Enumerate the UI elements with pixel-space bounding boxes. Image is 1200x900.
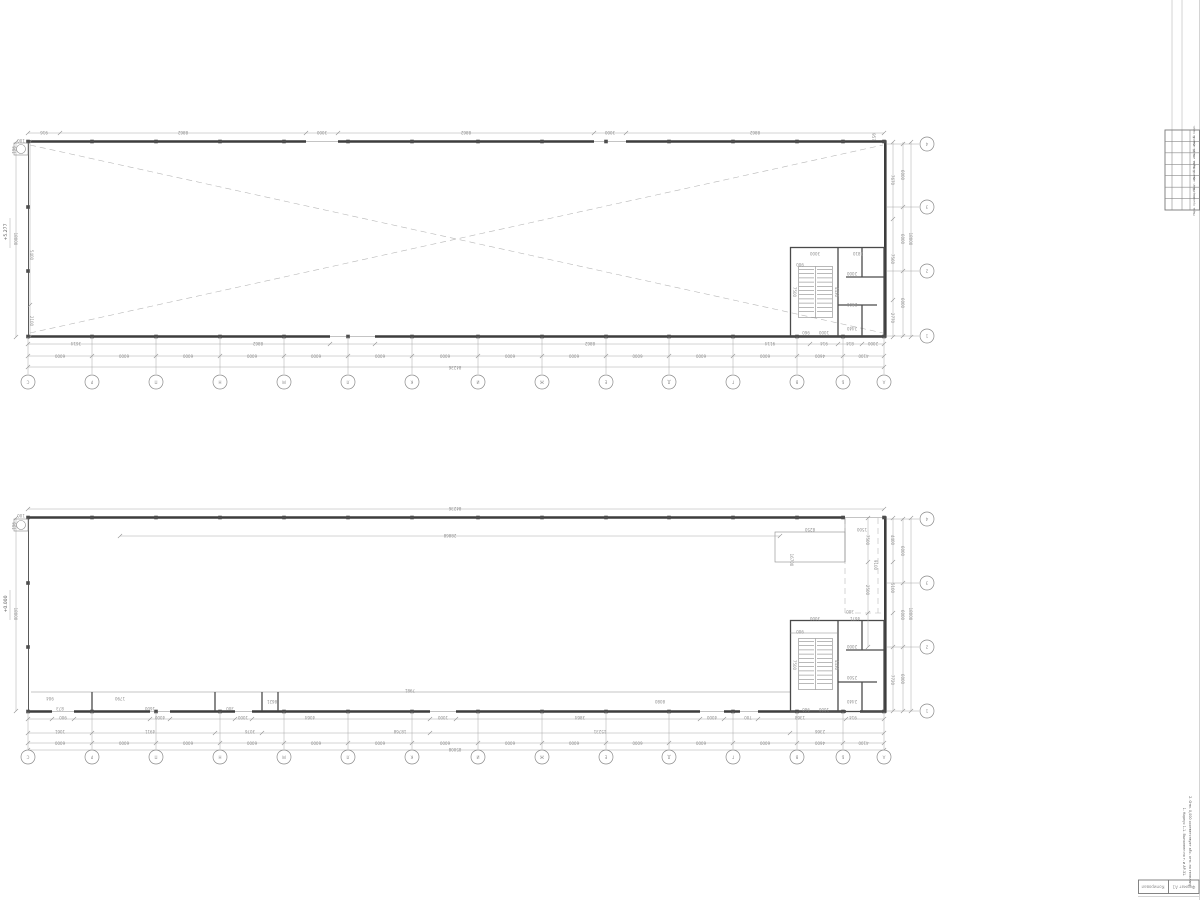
bay-dimension: 6000: [118, 354, 129, 359]
bay-dimension: 6000: [182, 741, 193, 746]
dimension-text: 18000: [908, 608, 913, 621]
axis-label: А: [882, 379, 885, 384]
dimension-text: 18000: [13, 233, 18, 246]
axis-label: Л: [346, 379, 349, 384]
dimension-text: 4400: [890, 535, 895, 546]
dimension-text: 16700: [789, 554, 794, 567]
axis-label: 4: [925, 516, 928, 521]
dimension-text: 7720: [890, 675, 895, 686]
dimension-text: 3000: [809, 616, 820, 621]
column-mark: [346, 140, 350, 144]
dimension-text: 700: [744, 715, 752, 720]
column-mark: [667, 140, 671, 144]
column-mark: [26, 645, 30, 649]
roof-bracing-diagonals: [30, 145, 883, 333]
dimension-text: 3000: [809, 251, 820, 256]
dimension-text: 3614: [70, 341, 81, 346]
dimension-text: 8862: [749, 130, 760, 135]
bay-dimension: 6000: [118, 741, 129, 746]
dimension-text: 8862: [177, 130, 188, 135]
drawing-canvas: +5.277 916886230008862300088629573614886…: [0, 0, 1200, 900]
axis-label: 3: [925, 580, 928, 585]
dimension-text: 9100: [873, 560, 878, 571]
axis-label: 3: [925, 204, 928, 209]
dimension-text: 84236: [448, 365, 461, 370]
dimension-text: 300: [846, 609, 854, 614]
dimension-text: 4430: [834, 660, 839, 671]
column-mark: [218, 140, 222, 144]
dimension-text: 873: [56, 706, 64, 711]
column-mark: [26, 205, 30, 209]
upper-dim-ticks: [14, 131, 913, 369]
bay-dimension: 6000: [182, 354, 193, 359]
dimension-text: 914: [849, 715, 857, 720]
stamp-left-label: Копировал: [1141, 885, 1164, 890]
dimension-text: 1000: [237, 715, 248, 720]
drawing-sheet: +5.277 916886230008862300088629573614886…: [0, 0, 1200, 900]
stamp-right-label: Формат А1: [1172, 885, 1195, 890]
axis-label: Б: [841, 754, 844, 759]
dimension-text: 3000: [316, 130, 327, 135]
bay-dimension: 4600: [814, 741, 825, 746]
column-mark: [90, 516, 94, 520]
dimension-text: 6000: [900, 546, 905, 557]
lower-walls: [28, 516, 885, 713]
bay-dimension: 6000: [310, 354, 321, 359]
dimension-text: 7670: [890, 175, 895, 186]
sheet-note-1: 1. Корпус 1-1. Выполнен по т. и АР-31.: [1182, 808, 1186, 877]
column-mark: [795, 140, 799, 144]
column-mark: [476, 140, 480, 144]
dimension-text: 961: [11, 146, 16, 154]
dimension-text: 15231: [593, 729, 606, 734]
dimension-text: 7500: [865, 535, 870, 546]
column-mark: [90, 140, 94, 144]
dimension-text: 2500: [865, 585, 870, 596]
dimension-text: 2440: [846, 326, 857, 331]
dimension-text: 7500: [792, 287, 797, 298]
bay-dimension: 6000: [632, 741, 643, 746]
bay-dimension: 6000: [568, 354, 579, 359]
dimension-text: 2770: [890, 313, 895, 324]
lower-floor-plan: +0.000 842362886879819041790873160030086…: [3, 506, 934, 764]
bay-dimension: 6000: [759, 741, 770, 746]
dimension-text: 2366: [814, 729, 825, 734]
dimension-text: 1790: [114, 696, 125, 701]
upper-elevation-label: +5.277: [3, 223, 9, 240]
column-mark: [604, 516, 608, 520]
column-mark: [540, 140, 544, 144]
column-mark: [731, 516, 735, 520]
axis-label: 1: [925, 333, 928, 338]
column-mark: [282, 140, 286, 144]
lower-axis-bubbles-horizontal: СРПНМЛКИЖЕДГВБА: [21, 712, 891, 764]
dimension-text: 6000: [900, 170, 905, 181]
dimension-text: 3000: [604, 130, 615, 135]
bay-dimension: 4100: [858, 741, 869, 746]
axis-label: К: [410, 754, 413, 759]
column-mark: [540, 516, 544, 520]
dimension-text: 2500: [846, 675, 857, 680]
axis-label: Л: [346, 754, 349, 759]
axis-label: П: [154, 754, 157, 759]
bay-dimension: 4600: [814, 354, 825, 359]
bay-dimension: 6000: [568, 741, 579, 746]
column-mark: [841, 516, 845, 520]
dimension-text: 7560: [890, 254, 895, 265]
axis-label: К: [410, 379, 413, 384]
dimension-text: 2100: [29, 316, 34, 327]
axis-label: 1: [925, 708, 928, 713]
dimension-text: 900: [796, 262, 804, 267]
axis-label: Н: [218, 379, 221, 384]
dimension-text: 18000: [13, 608, 18, 621]
axis-label: И: [477, 754, 480, 759]
axis-label: 2: [925, 268, 928, 273]
lower-elevation-label: +0.000: [3, 595, 9, 612]
bay-dimension: 6000: [695, 741, 706, 746]
bay-dimension: 6000: [310, 741, 321, 746]
bay-dimension: 6000: [759, 354, 770, 359]
dimension-text: 2440: [846, 699, 857, 704]
dimension-text: 2000: [867, 341, 878, 346]
axis-label: И: [477, 379, 480, 384]
dimension-text: 1368: [794, 715, 805, 720]
column-mark: [410, 516, 414, 520]
dimension-text: 18768: [393, 729, 406, 734]
bay-dimension: 6000: [374, 354, 385, 359]
axis-label: С: [26, 379, 29, 384]
dimension-text: 8862: [460, 130, 471, 135]
axis-label: В: [795, 754, 798, 759]
dimension-text: 4911: [144, 729, 155, 734]
upper-axis-bubbles-horizontal: СРПНМЛКИЖЕДГВБА: [21, 337, 891, 389]
dimension-text: 2000: [846, 271, 857, 276]
bay-dimension: 6000: [54, 354, 65, 359]
dimension-text: 961: [11, 522, 16, 530]
axis-label: С: [26, 754, 29, 759]
dimension-text: 18000: [908, 233, 913, 246]
column-mark: [154, 140, 158, 144]
column-mark: [667, 516, 671, 520]
column-mark: [604, 140, 608, 144]
bay-dimension: 4100: [858, 354, 869, 359]
axis-label: Д: [667, 379, 670, 384]
dimension-text: 814: [846, 341, 854, 346]
title-row-label: Перв. примен.: [1192, 193, 1196, 216]
dimension-text: 2000: [846, 644, 857, 649]
dimension-text: 3076: [244, 729, 255, 734]
axis-label: 4: [925, 141, 928, 146]
dimension-text: 960: [802, 707, 810, 712]
dimension-text: 4671: [849, 616, 860, 621]
dimension-text: 957: [871, 133, 876, 141]
bay-dimension: 6000: [374, 741, 385, 746]
dimension-text: 1810: [852, 251, 863, 256]
dimension-text: 960: [802, 330, 810, 335]
column-mark: [882, 516, 886, 520]
dimension-text: 8250: [804, 527, 815, 532]
column-mark: [346, 516, 350, 520]
bay-dimension: 6000: [504, 741, 515, 746]
dimension-text: 916: [40, 130, 48, 135]
column-mark: [795, 516, 799, 520]
dimension-text: 4064: [304, 715, 315, 720]
dimension-text: 1000: [437, 715, 448, 720]
bay-dimension: 6000: [54, 741, 65, 746]
axis-label: 2: [925, 644, 928, 649]
dimension-text: 1500: [856, 527, 867, 532]
bay-dimension: 6000: [246, 354, 257, 359]
bay-dimension: 6000: [632, 354, 643, 359]
dimension-text: 900: [796, 629, 804, 634]
bay-dimension: 6000: [504, 354, 515, 359]
column-mark: [26, 581, 30, 585]
dimension-text: 28868: [443, 533, 456, 538]
bay-dimension: 6000: [246, 741, 257, 746]
axis-label: П: [154, 379, 157, 384]
bay-dimension: 6000: [439, 354, 450, 359]
column-mark: [841, 140, 845, 144]
axis-label: Ж: [539, 379, 544, 384]
axis-label: Ж: [539, 754, 544, 759]
axis-label: Д: [667, 754, 670, 759]
title-block: Инв. № подл.Подп. и датаВзам. инв. №Инв.…: [1138, 0, 1200, 900]
dimension-text: 100: [17, 513, 25, 518]
dimension-text: 84236: [448, 506, 461, 511]
lower-column-marks: [26, 516, 886, 714]
axis-label: М: [282, 754, 286, 759]
dimension-text: 5100: [890, 583, 895, 594]
dimension-text: 3864: [574, 715, 585, 720]
dimension-text: 7500: [792, 660, 797, 671]
axis-label: А: [882, 754, 885, 759]
axis-label: Б: [841, 379, 844, 384]
dimension-text: 8080: [654, 699, 665, 704]
dimension-text: 1061: [54, 729, 65, 734]
dimension-text: 914: [820, 341, 828, 346]
upper-column-marks: [26, 140, 886, 339]
bay-dimension: 6000: [439, 741, 450, 746]
axis-label: Н: [218, 754, 221, 759]
column-mark: [882, 140, 886, 144]
column-mark: [476, 516, 480, 520]
dimension-text: 85008: [448, 747, 461, 752]
dimension-text: 2500: [846, 302, 857, 307]
dimension-text: 6000: [900, 298, 905, 309]
bay-dimension: 6000: [695, 354, 706, 359]
dimension-text: 1600: [144, 706, 155, 711]
column-mark: [26, 269, 30, 273]
column-mark: [731, 140, 735, 144]
lower-dimension-texts: 8423628868798190417908731600300862180809…: [11, 506, 913, 752]
column-mark: [154, 516, 158, 520]
dimension-text: 100: [17, 138, 25, 143]
axis-label: В: [795, 379, 798, 384]
axis-label: М: [282, 379, 286, 384]
dimension-text: 6000: [900, 234, 905, 245]
dimension-text: 4000: [706, 715, 717, 720]
dimension-text: 8862: [252, 341, 263, 346]
dimension-text: 9114: [764, 341, 775, 346]
dimension-text: 8621: [266, 699, 277, 704]
dimension-text: 900: [59, 715, 67, 720]
dimension-text: 7981: [404, 688, 415, 693]
column-mark: [282, 516, 286, 520]
dimension-text: 6000: [900, 610, 905, 621]
mezzanine-outline: [775, 532, 845, 562]
column-mark: [218, 516, 222, 520]
dimension-text: 5400: [29, 250, 34, 261]
dimension-text: 1000: [818, 707, 829, 712]
sheet-note-2: 2. Отм. 0,000 соответствует абс. отм. по…: [1188, 796, 1192, 888]
upper-walls: [28, 140, 885, 338]
dimension-text: 1000: [818, 330, 829, 335]
dimension-text: 300: [226, 706, 234, 711]
upper-floor-plan: +5.277 916886230008862300088629573614886…: [3, 130, 934, 389]
dimension-text: 6000: [900, 674, 905, 685]
upper-dimension-texts: 9168862300088623000886295736148862886291…: [11, 130, 913, 370]
column-mark: [410, 140, 414, 144]
dimension-text: 4430: [834, 287, 839, 298]
dimension-text: 904: [46, 696, 54, 701]
lower-dim-ticks: [14, 507, 913, 752]
dimension-text: 8862: [584, 341, 595, 346]
